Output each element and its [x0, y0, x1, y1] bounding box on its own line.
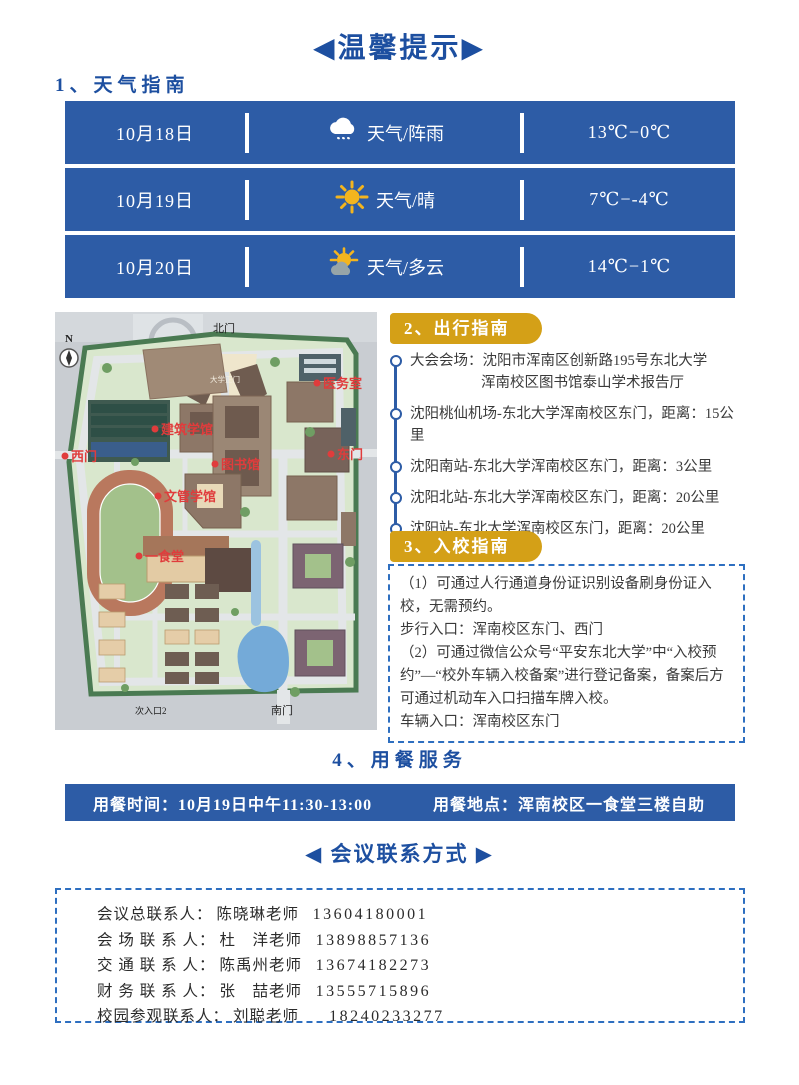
entry-line: 步行入口：浑南校区东门、西门	[400, 619, 733, 642]
weather-temp: 7℃−-4℃	[524, 189, 735, 210]
contact-role: 校园参观联系人：	[97, 1008, 229, 1025]
weather-row-day3: 10月20日 天气/多云 14℃−1℃	[65, 235, 735, 298]
travel-item-text: 大会会场：沈阳市浑南区创新路195号东北大学	[410, 350, 748, 372]
weather-desc: 天气/阵雨	[367, 120, 444, 146]
travel-item-text2: 浑南校区图书馆泰山学术报告厅	[410, 372, 748, 394]
sun-icon	[334, 179, 376, 220]
contact-row: 校园参观联系人：刘聪老师18240233277	[97, 1004, 743, 1030]
map-label-culture-management-building: 文管学馆	[164, 489, 216, 504]
map-south-gate-label: 南门	[271, 703, 293, 717]
contact-phone: 18240233277	[329, 1008, 445, 1025]
weather-date: 10月18日	[65, 120, 245, 146]
map-north-gate-label: 北门	[213, 321, 235, 335]
travel-section-badge: 2、出行指南	[390, 313, 542, 344]
campus-map: N 北门 大学正门 南门 次入口2 医务室 建筑学馆 西门 图书馆 东门 文管学…	[55, 312, 377, 730]
travel-item-text: 沈阳南站-东北大学浑南校区东门，距离：3公里	[410, 456, 748, 478]
dining-place: 用餐地点：浑南校区一食堂三楼自助	[433, 791, 705, 815]
timeline-dot-icon	[390, 461, 402, 473]
timeline-dot-icon	[390, 408, 402, 420]
contact-role: 交 通 联 系 人：	[97, 957, 216, 974]
contact-phone: 13604180001	[313, 906, 429, 923]
sun-cloud-icon	[325, 246, 367, 287]
contact-row: 财 务 联 系 人：张 喆老师13555715896	[97, 979, 743, 1005]
weather-row-day1: 10月18日 天气/阵雨 13℃−0℃	[65, 101, 735, 164]
entry-line: （2）可通过微信公众号“平安东北大学”中“入校预约”—“校外车辆入校备案”进行登…	[400, 642, 733, 711]
timeline-dot-icon	[390, 492, 402, 504]
entry-line: 车辆入口：浑南校区东门	[400, 711, 733, 734]
contact-row: 交 通 联 系 人：陈禹州老师13674182273	[97, 953, 743, 979]
travel-item-text: 沈阳北站-东北大学浑南校区东门，距离：20公里	[410, 487, 748, 509]
weather-temp: 14℃−1℃	[524, 256, 735, 277]
contact-name: 陈晓琳老师	[217, 902, 313, 928]
page-title: ◀温馨提示▶	[0, 26, 799, 66]
entry-line: （1）可通过人行通道身份证识别设备刷身份证入校，无需预约。	[400, 573, 733, 619]
map-label-west-gate: 西门	[71, 449, 97, 464]
contact-role: 会 场 联 系 人：	[97, 932, 216, 949]
contacts-title: ◀ 会议联系方式 ▶	[0, 838, 799, 868]
weather-temp: 13℃−0℃	[524, 122, 735, 143]
contact-phone: 13555715896	[316, 983, 432, 1000]
travel-item-north-station: 沈阳北站-东北大学浑南校区东门，距离：20公里	[390, 487, 748, 509]
map-main-gate-label: 大学正门	[210, 374, 240, 384]
travel-guide-list: 大会会场：沈阳市浑南区创新路195号东北大学 浑南校区图书馆泰山学术报告厅 沈阳…	[390, 350, 748, 549]
contact-name: 陈禹州老师	[220, 953, 316, 979]
contacts-box: 会议总联系人：陈晓琳老师13604180001 会 场 联 系 人：杜 洋老师1…	[55, 888, 745, 1023]
travel-item-venue: 大会会场：沈阳市浑南区创新路195号东北大学 浑南校区图书馆泰山学术报告厅	[390, 350, 748, 394]
map-label-architecture-building: 建筑学馆	[161, 422, 213, 437]
contact-row: 会 场 联 系 人：杜 洋老师13898857136	[97, 928, 743, 954]
map-label-library: 图书馆	[221, 457, 260, 472]
weather-section-heading: 1、天气指南	[55, 70, 190, 97]
contact-phone: 13674182273	[316, 957, 432, 974]
weather-row-day2: 10月19日 天气/晴 7℃−-4℃	[65, 168, 735, 231]
notice-page: ◀温馨提示▶ 1、天气指南 10月18日 天气/阵雨 13℃−0℃	[0, 0, 799, 1085]
contact-name: 张 喆老师	[220, 979, 316, 1005]
contact-role: 会议总联系人：	[97, 906, 213, 923]
rain-cloud-icon	[325, 112, 367, 153]
contact-row: 会议总联系人：陈晓琳老师13604180001	[97, 902, 743, 928]
timeline-dot-icon	[390, 355, 402, 367]
entry-guide-box: （1）可通过人行通道身份证识别设备刷身份证入校，无需预约。 步行入口：浑南校区东…	[388, 564, 745, 743]
travel-item-south-station: 沈阳南站-东北大学浑南校区东门，距离：3公里	[390, 456, 748, 478]
contact-phone: 13898857136	[316, 932, 432, 949]
travel-item-airport: 沈阳桃仙机场-东北大学浑南校区东门，距离：15公里	[390, 403, 748, 447]
contact-role: 财 务 联 系 人：	[97, 983, 216, 1000]
contact-name: 杜 洋老师	[220, 928, 316, 954]
weather-desc: 天气/多云	[367, 254, 444, 280]
entry-section-badge: 3、入校指南	[390, 531, 542, 562]
dining-info-bar: 用餐时间：10月19日中午11:30-13:00 用餐地点：浑南校区一食堂三楼自…	[65, 784, 735, 821]
weather-desc: 天气/晴	[376, 187, 435, 213]
weather-date: 10月19日	[65, 187, 245, 213]
dining-time: 用餐时间：10月19日中午11:30-13:00	[93, 791, 372, 815]
contact-name: 刘聪老师	[233, 1004, 329, 1030]
compass-n-label: N	[65, 333, 73, 345]
map-label-infirmary: 医务室	[323, 376, 362, 391]
map-label-east-gate: 东门	[337, 447, 363, 462]
travel-item-text: 沈阳桃仙机场-东北大学浑南校区东门，距离：15公里	[410, 403, 748, 447]
map-side-entrance-label: 次入口2	[135, 705, 167, 716]
weather-table: 10月18日 天气/阵雨 13℃−0℃ 10月19日	[65, 101, 735, 302]
weather-date: 10月20日	[65, 254, 245, 280]
map-label-canteen: 一食堂	[145, 549, 184, 564]
dining-section-heading: 4、用餐服务	[0, 745, 799, 772]
